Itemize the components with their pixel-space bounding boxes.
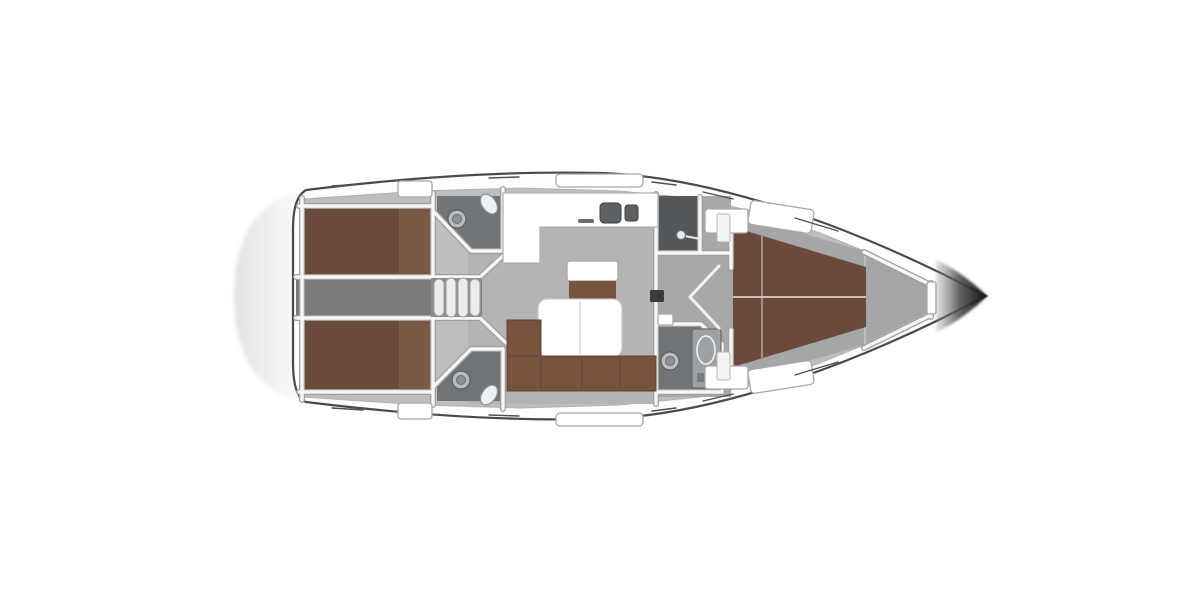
aft-cabin-starboard-berth	[303, 318, 431, 392]
berth-pillow-band	[399, 318, 431, 392]
galley-sink-icon	[600, 203, 638, 223]
deck-hatch	[398, 403, 432, 419]
aft-head-starboard-toilet	[452, 371, 470, 389]
bow-tip	[936, 260, 987, 332]
salon-table	[538, 299, 622, 357]
forward-entry-locker-starboard	[717, 352, 730, 380]
bow-bulkhead	[927, 282, 936, 314]
aft-cabin-port-berth	[303, 206, 431, 279]
toilet-icon	[457, 376, 466, 385]
coachroof-hatch	[556, 413, 643, 426]
yacht-floorplan	[0, 0, 1200, 600]
coachroof-hatch	[556, 174, 643, 187]
stove-icon	[578, 219, 594, 223]
aft-head-port-toilet	[448, 210, 466, 228]
shower-stall-floor	[657, 196, 700, 253]
companionway-stairs	[431, 278, 481, 317]
toilet-icon	[453, 215, 462, 224]
corridor-locker	[658, 314, 673, 325]
berth-pillow-band	[399, 206, 431, 279]
salon-seat	[567, 261, 618, 299]
toilet-icon	[666, 357, 675, 366]
mid-head-toilet	[661, 352, 679, 370]
floorplan-canvas	[0, 0, 1200, 600]
forward-entry-locker-port	[717, 214, 730, 242]
deck-hatch	[398, 181, 432, 197]
mast-step-icon	[650, 290, 664, 302]
